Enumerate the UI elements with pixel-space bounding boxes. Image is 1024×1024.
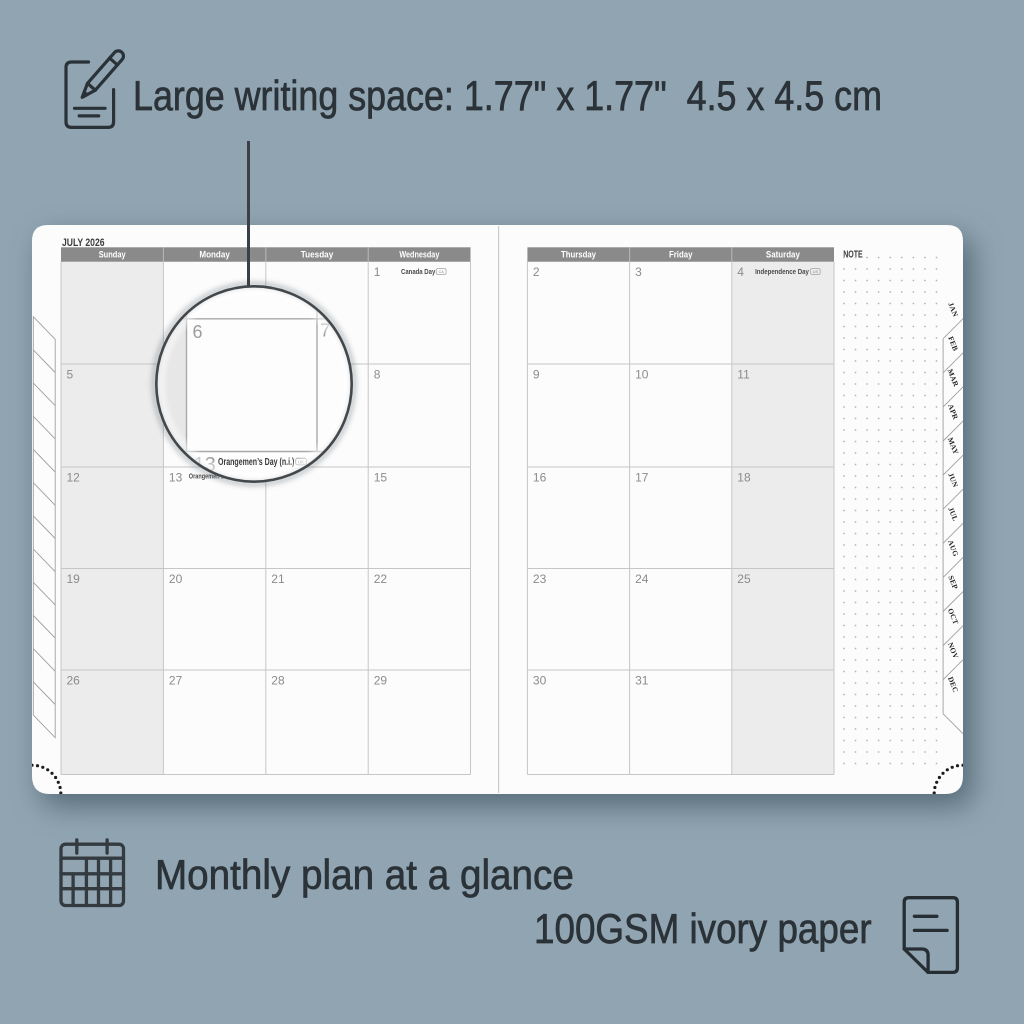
svg-text:Canada Day: Canada Day <box>401 269 435 276</box>
svg-text:NOTE: NOTE <box>843 249 863 260</box>
svg-text:11: 11 <box>737 367 750 381</box>
svg-text:Saturday: Saturday <box>765 249 800 259</box>
svg-text:9: 9 <box>532 367 539 381</box>
svg-text:23: 23 <box>532 572 546 586</box>
svg-text:24: 24 <box>635 572 649 586</box>
svg-text:US: US <box>812 269 818 273</box>
svg-text:17: 17 <box>635 470 649 484</box>
svg-text:Tuesday: Tuesday <box>300 249 333 259</box>
svg-text:27: 27 <box>168 673 182 687</box>
svg-text:2: 2 <box>532 265 539 279</box>
svg-text:CA: CA <box>438 269 444 273</box>
svg-text:Thursday: Thursday <box>561 249 597 259</box>
svg-text:Wednesday: Wednesday <box>399 249 440 259</box>
svg-text:4: 4 <box>737 265 744 279</box>
svg-text:21: 21 <box>271 572 285 586</box>
svg-text:3: 3 <box>635 265 642 279</box>
svg-text:5: 5 <box>66 367 73 381</box>
svg-text:JULY 2026: JULY 2026 <box>62 237 105 249</box>
svg-text:Sunday: Sunday <box>98 249 126 259</box>
svg-text:1: 1 <box>373 265 380 279</box>
svg-text:18: 18 <box>737 470 751 484</box>
svg-text:Independence Day: Independence Day <box>755 269 809 276</box>
svg-text:15: 15 <box>373 470 387 484</box>
svg-text:13: 13 <box>168 470 182 484</box>
svg-text:12: 12 <box>66 470 80 484</box>
svg-text:29: 29 <box>373 673 387 687</box>
svg-text:16: 16 <box>532 470 546 484</box>
svg-text:Friday: Friday <box>668 249 692 259</box>
svg-text:22: 22 <box>373 572 387 586</box>
svg-text:28: 28 <box>271 673 285 687</box>
svg-text:20: 20 <box>168 572 182 586</box>
svg-text:10: 10 <box>635 367 649 381</box>
svg-text:19: 19 <box>66 572 80 586</box>
svg-text:25: 25 <box>737 572 751 586</box>
svg-text:8: 8 <box>373 367 380 381</box>
svg-text:26: 26 <box>66 673 80 687</box>
svg-text:Monday: Monday <box>199 249 230 259</box>
svg-text:30: 30 <box>532 673 546 687</box>
svg-text:31: 31 <box>635 673 649 687</box>
